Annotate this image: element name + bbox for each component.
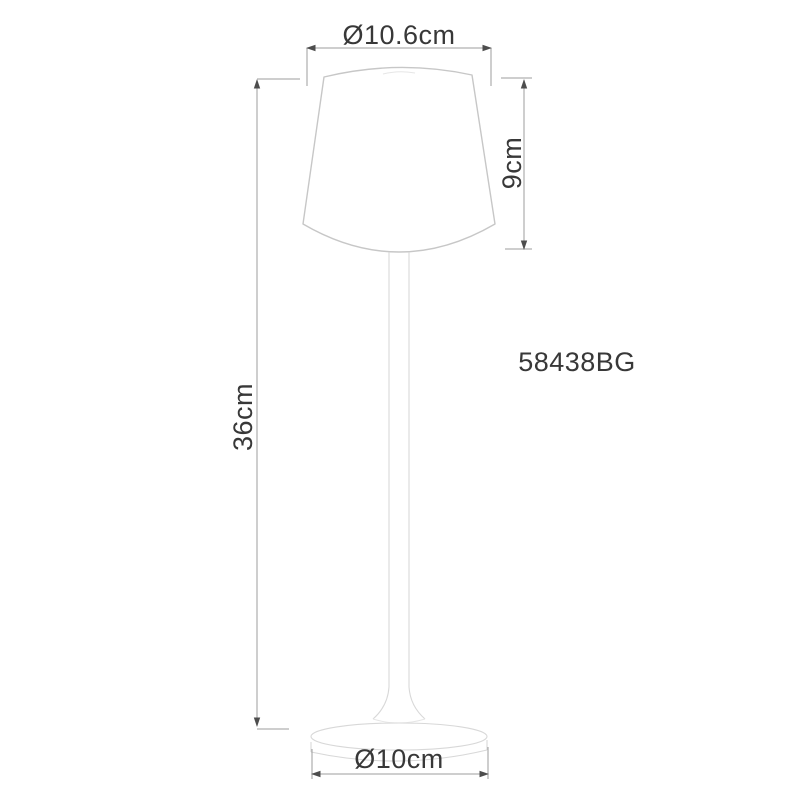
lamp-dimension-diagram: Ø10.6cm 36cm 9cm Ø10cm — [0, 0, 800, 800]
lamp-drawing — [303, 67, 495, 761]
shade-top-fitting-mark — [383, 72, 415, 74]
total-height-label: 36cm — [228, 383, 258, 451]
arrow-up-icon — [254, 79, 260, 89]
stem-flare-right — [409, 687, 425, 719]
dimension-total-height: 36cm — [228, 79, 300, 729]
top-diameter-label: Ø10.6cm — [342, 20, 455, 50]
stem-flare-foot — [373, 719, 425, 723]
arrow-up-icon — [521, 79, 527, 89]
lampshade-outline — [303, 67, 495, 252]
dimension-shade-height: 9cm — [497, 78, 532, 250]
dimension-drawing-canvas: Ø10.6cm 36cm 9cm Ø10cm — [0, 0, 800, 800]
base-diameter-label: Ø10cm — [354, 744, 444, 774]
dimension-top-diameter: Ø10.6cm — [306, 20, 492, 86]
dimension-base-diameter: Ø10cm — [311, 744, 489, 779]
shade-height-label: 9cm — [497, 137, 527, 190]
stem-flare-left — [373, 687, 389, 719]
arrow-down-icon — [254, 718, 260, 728]
model-number-label: 58438BG — [518, 347, 636, 377]
